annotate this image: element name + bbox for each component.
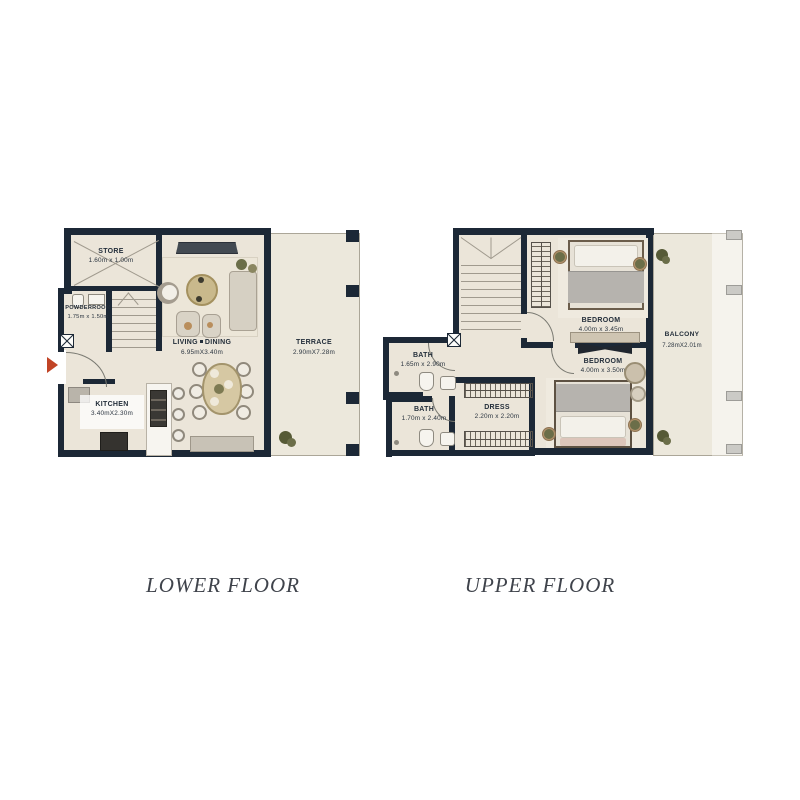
sink-icon [440, 376, 456, 390]
stool-icon [172, 408, 185, 421]
plate-icon [224, 380, 233, 389]
wall [64, 228, 270, 235]
plate-icon [210, 369, 219, 378]
dining-label: DINING [205, 339, 231, 346]
appliance-stack-icon [150, 390, 167, 427]
drain-icon [394, 371, 399, 376]
sofa-icon [229, 271, 257, 331]
throw-icon [207, 322, 213, 328]
bed-accent [560, 438, 626, 446]
powderroom-dims: 1.75m x 1.50m [58, 315, 118, 321]
kitchen-dims: 3.40mX2.30m [76, 411, 148, 417]
wall [383, 337, 389, 400]
balcony-outer-area [712, 233, 743, 456]
wall [264, 228, 271, 457]
dress-label: DRESS [462, 404, 532, 411]
bed-pillows [574, 245, 638, 267]
plant-icon [663, 437, 671, 445]
terrace-post [346, 444, 359, 456]
tv-icon [176, 242, 238, 254]
wall [386, 396, 432, 402]
balcony-post [726, 391, 742, 401]
terrace-dims: 2.90mX7.28m [274, 350, 354, 356]
wall [64, 228, 71, 294]
stool-icon [172, 387, 185, 400]
bath-top-label: BATH [388, 352, 458, 359]
plant-icon [630, 420, 640, 430]
stairs-upper [461, 258, 521, 332]
wall [453, 228, 654, 235]
dresser-icon [570, 332, 640, 343]
plant-icon [555, 252, 565, 262]
terrace-label: TERRACE [274, 339, 354, 346]
living-label: LIVING [173, 339, 198, 346]
stove-icon [100, 432, 128, 451]
plant-icon [236, 259, 247, 270]
sink-icon [88, 294, 105, 305]
balcony-post [726, 444, 742, 454]
wall [529, 448, 653, 455]
floor-plan-canvas: STORE 1.60m x 1.00m POWDERROOM 1.75m x 1… [0, 0, 800, 800]
living-dining-label: LIVINGDINING [152, 339, 252, 346]
balcony-post [726, 285, 742, 295]
stool-icon [172, 429, 185, 442]
balcony-label: BALCONY [653, 332, 711, 339]
plate-icon [210, 397, 219, 406]
wall [521, 234, 527, 314]
terrace-post [346, 285, 359, 297]
dining-chair-icon [192, 405, 207, 420]
balcony-dims: 7.28mX2.01m [650, 343, 714, 349]
decor-dot [196, 296, 202, 302]
round-chair-icon [630, 386, 646, 402]
plant-icon [544, 429, 554, 439]
wall [70, 286, 162, 291]
bed-pillows [560, 416, 626, 438]
dining-chair-icon [236, 405, 251, 420]
plant-icon [248, 264, 257, 273]
separator-square-icon [200, 340, 203, 343]
store-label: STORE [76, 248, 146, 255]
wall [453, 228, 459, 338]
powderroom-label: POWDERROOM [58, 306, 118, 312]
drain-icon [394, 440, 399, 445]
terrace-post [346, 392, 359, 404]
wall [386, 450, 535, 456]
armchair-cushion [162, 285, 177, 300]
bath-bottom-label: BATH [389, 406, 459, 413]
bed-blanket [568, 271, 644, 303]
wardrobe-icon [531, 242, 551, 308]
store-dims: 1.60m x 1.00m [76, 258, 146, 264]
toilet-icon [419, 429, 434, 447]
bed-blanket [556, 384, 630, 412]
bedroom-top-label: BEDROOM [556, 317, 646, 324]
plant-icon [287, 438, 296, 447]
terrace-post [346, 230, 359, 242]
wall [521, 342, 553, 348]
stairs-center-line [491, 238, 492, 259]
plant-icon [662, 256, 670, 264]
toilet-icon [419, 372, 434, 391]
window-shaft-icon [60, 334, 74, 348]
plant-icon [635, 259, 645, 269]
bath-top-dims: 1.65m x 2.90m [388, 362, 458, 368]
centerpiece-plant-icon [214, 384, 224, 394]
upper-floor-title: UPPER FLOOR [430, 573, 650, 598]
round-chair-icon [624, 362, 646, 384]
bath-bottom-dims: 1.70m x 2.40m [389, 416, 459, 422]
living-dining-dims: 6.95mX3.40m [152, 350, 252, 356]
console-icon [190, 436, 254, 452]
balcony-post [726, 230, 742, 240]
entrance-arrow-icon [47, 357, 58, 373]
sink-icon [440, 432, 455, 446]
wall [58, 384, 64, 457]
throw-icon [184, 322, 192, 330]
decor-dot [198, 277, 204, 283]
lower-floor-title: LOWER FLOOR [113, 573, 333, 598]
kitchen-label: KITCHEN [76, 401, 148, 408]
wardrobe-icon [464, 431, 533, 447]
dress-dims: 2.20m x 2.20m [462, 414, 532, 420]
wardrobe-icon [464, 383, 533, 398]
